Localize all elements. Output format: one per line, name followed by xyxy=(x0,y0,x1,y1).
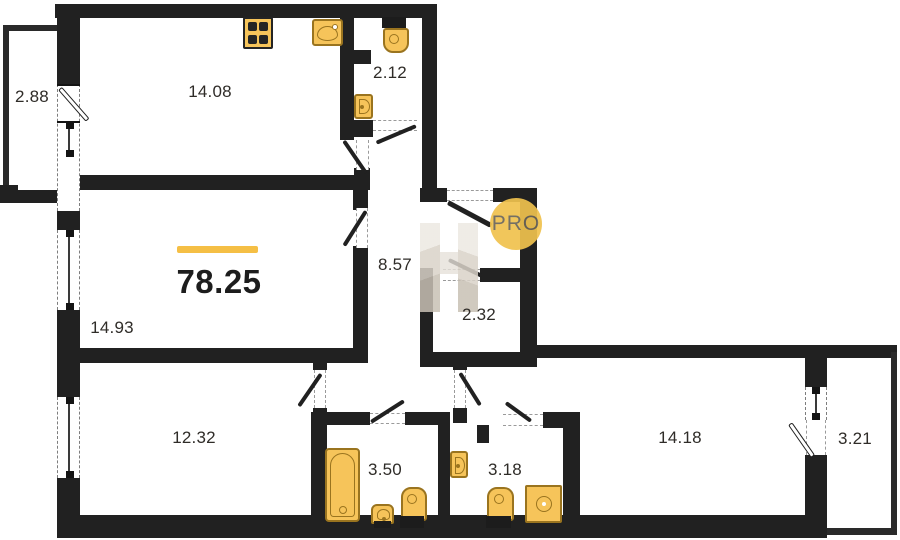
sink-base xyxy=(374,521,391,528)
room-area-hallway: 8.57 xyxy=(378,255,412,275)
wall xyxy=(805,347,827,387)
balcony-wall xyxy=(827,528,897,535)
wall xyxy=(57,515,827,538)
window-glass xyxy=(815,394,817,413)
wall xyxy=(420,188,447,202)
wall xyxy=(477,425,489,443)
toilet-icon xyxy=(486,487,511,528)
wall xyxy=(535,345,897,358)
balcony-wall xyxy=(0,190,57,203)
balcony-wall xyxy=(3,25,9,203)
bathtub-icon xyxy=(325,448,360,522)
window-cap xyxy=(66,122,74,129)
wall xyxy=(57,211,80,230)
wall xyxy=(422,4,437,202)
developer-logo xyxy=(458,223,478,312)
total-area-label: 78.25 xyxy=(176,263,261,301)
floor-plan: PRO 78.25 2.88 14.08 2.12 8.57 14.93 2.3… xyxy=(0,0,900,540)
window-jamb xyxy=(57,84,80,86)
wall xyxy=(805,455,827,517)
room-area-balcony-left: 2.88 xyxy=(15,87,49,107)
room-area-bedroom-left: 12.32 xyxy=(172,428,216,448)
window-glass xyxy=(68,129,70,150)
wall xyxy=(55,4,437,18)
balcony-wall xyxy=(3,25,57,31)
room-area-wc-bottom: 3.18 xyxy=(488,460,522,480)
wall xyxy=(453,408,467,423)
wall xyxy=(313,350,327,370)
wall xyxy=(453,352,467,370)
window-cap xyxy=(66,230,74,237)
developer-logo xyxy=(440,252,458,274)
room-area-storage: 2.32 xyxy=(462,305,496,325)
room-area-wc-top: 2.12 xyxy=(373,63,407,83)
wall xyxy=(325,412,370,425)
room-area-living-room: 14.93 xyxy=(90,318,134,338)
wall xyxy=(480,268,520,282)
wall xyxy=(353,246,368,360)
room-area-bathroom: 3.50 xyxy=(368,460,402,480)
room-area-kitchen: 14.08 xyxy=(188,82,232,102)
developer-logo xyxy=(420,223,440,312)
window-cap xyxy=(66,397,74,404)
toilet-icon xyxy=(382,17,406,50)
window-glass xyxy=(68,237,70,303)
wall xyxy=(563,412,580,515)
total-area-accent-bar xyxy=(177,246,258,253)
wall xyxy=(353,120,373,137)
door-opening xyxy=(447,190,493,201)
room-area-bedroom-right: 14.18 xyxy=(658,428,702,448)
pro-badge: PRO xyxy=(490,198,542,250)
window-cap xyxy=(66,150,74,157)
wall xyxy=(420,352,537,367)
hand-sink-icon xyxy=(354,94,373,119)
wall xyxy=(354,50,371,64)
wall xyxy=(438,412,450,515)
window-cap xyxy=(66,471,74,478)
washing-machine-icon xyxy=(525,485,562,523)
toilet-icon xyxy=(400,487,424,528)
wall xyxy=(57,4,80,85)
wall xyxy=(78,175,358,190)
wall xyxy=(353,188,368,210)
hand-sink-icon xyxy=(450,451,468,478)
window-cap xyxy=(812,413,820,420)
window-glass xyxy=(68,404,70,471)
kitchen-sink-icon xyxy=(312,19,343,46)
balcony-wall xyxy=(891,352,897,535)
window-cap xyxy=(812,387,820,394)
window-cap xyxy=(66,303,74,310)
stove-icon xyxy=(243,17,273,49)
wall xyxy=(57,478,80,518)
room-area-balcony-right: 3.21 xyxy=(838,429,872,449)
